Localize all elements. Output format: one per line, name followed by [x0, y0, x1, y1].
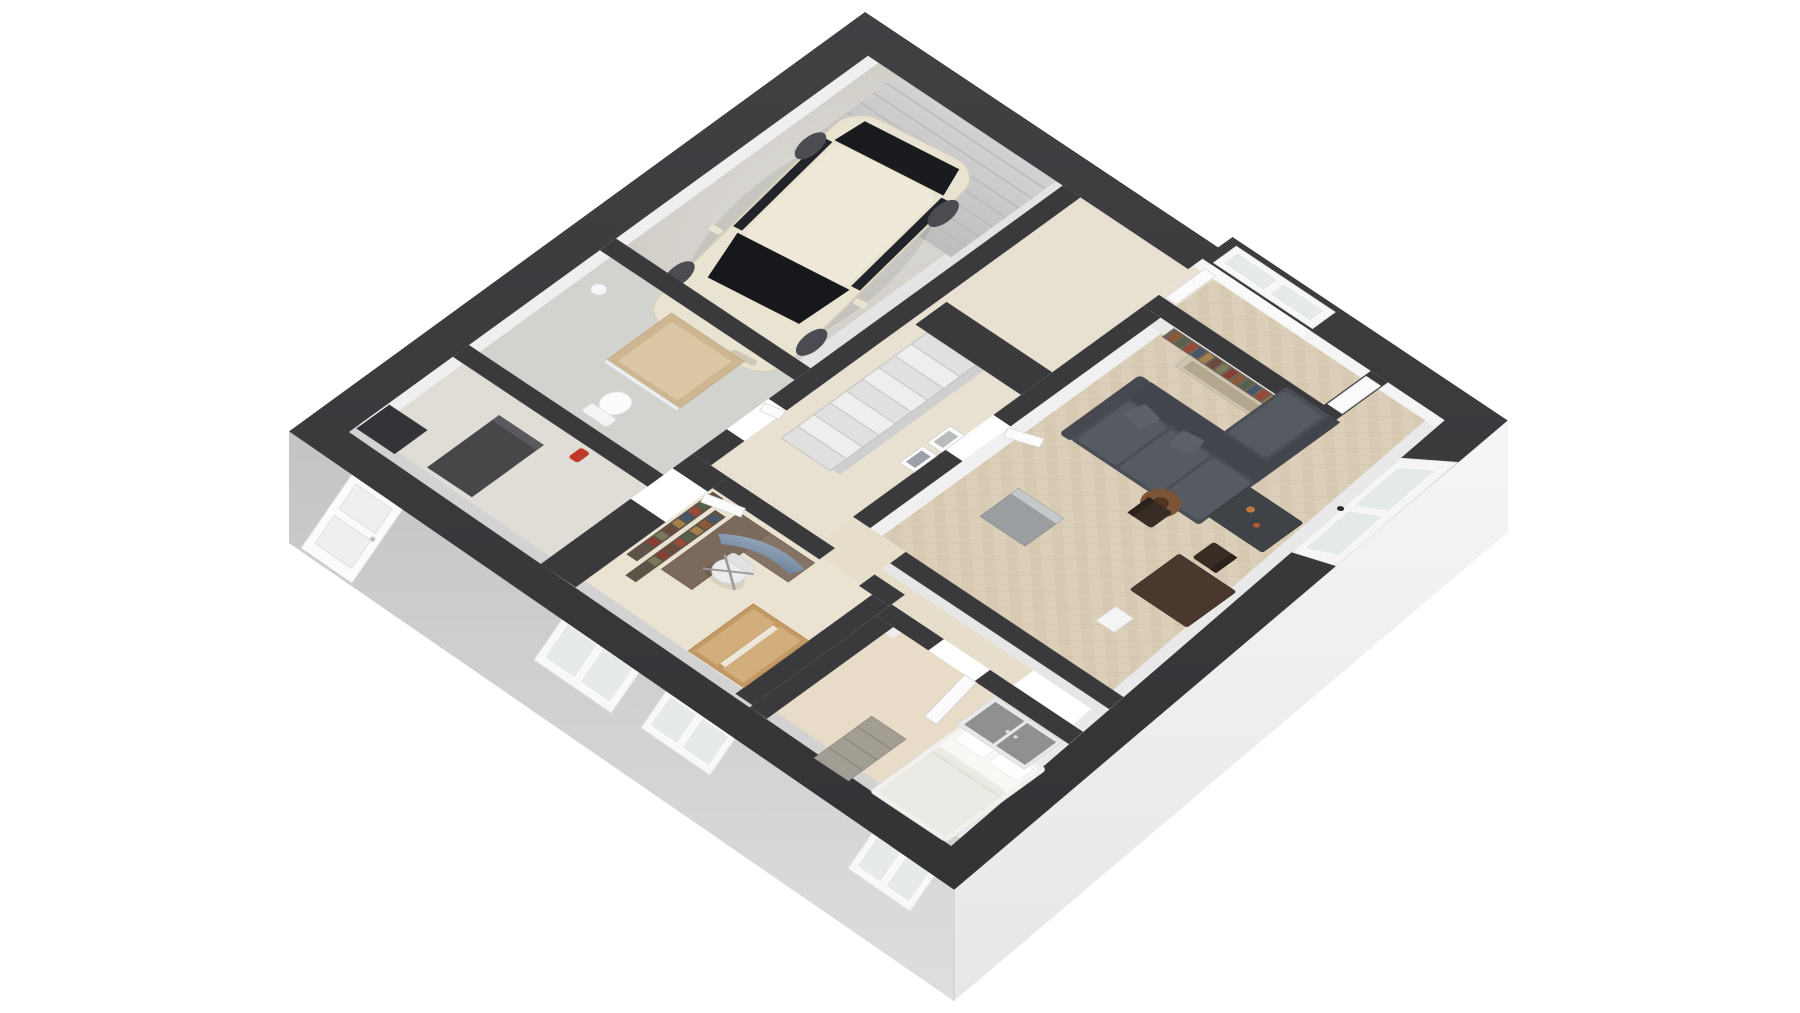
floorplan-stage: [0, 0, 1800, 1013]
floorplan-svg: [0, 0, 1800, 1013]
